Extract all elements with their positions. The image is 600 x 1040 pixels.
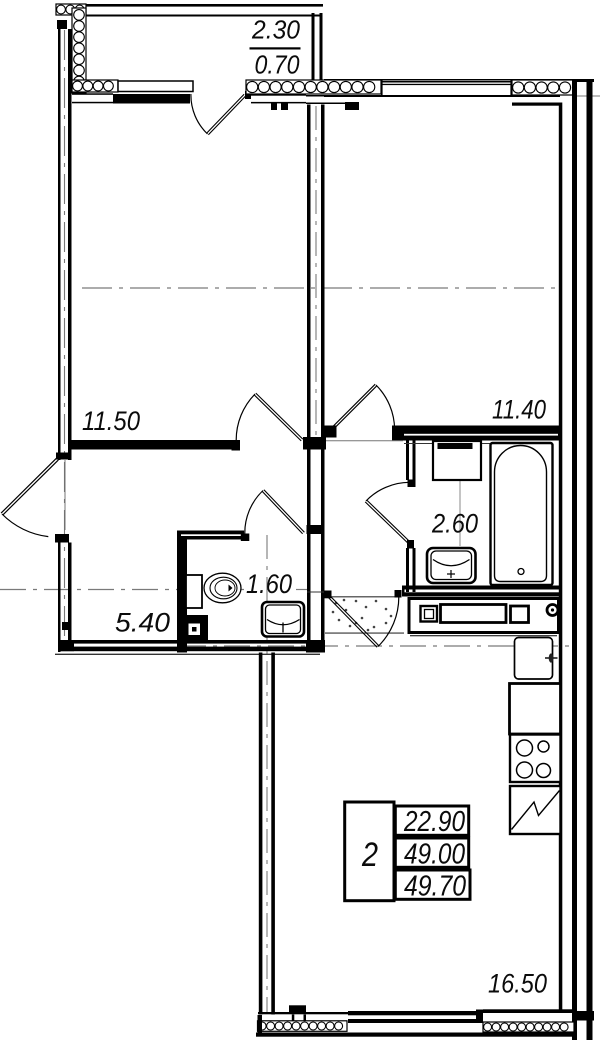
svg-text:49.00: 49.00 (404, 839, 465, 871)
svg-text:1.60: 1.60 (246, 569, 292, 599)
svg-text:22.90: 22.90 (403, 806, 465, 838)
svg-text:16.50: 16.50 (488, 969, 547, 999)
svg-text:2: 2 (361, 836, 378, 874)
svg-text:2.30: 2.30 (251, 15, 300, 45)
svg-text:5.40: 5.40 (115, 608, 170, 638)
svg-text:2.60: 2.60 (431, 509, 478, 539)
svg-text:0.70: 0.70 (255, 50, 300, 80)
svg-text:11.50: 11.50 (82, 406, 140, 436)
svg-text:49.70: 49.70 (404, 871, 466, 903)
svg-text:11.40: 11.40 (492, 395, 546, 425)
